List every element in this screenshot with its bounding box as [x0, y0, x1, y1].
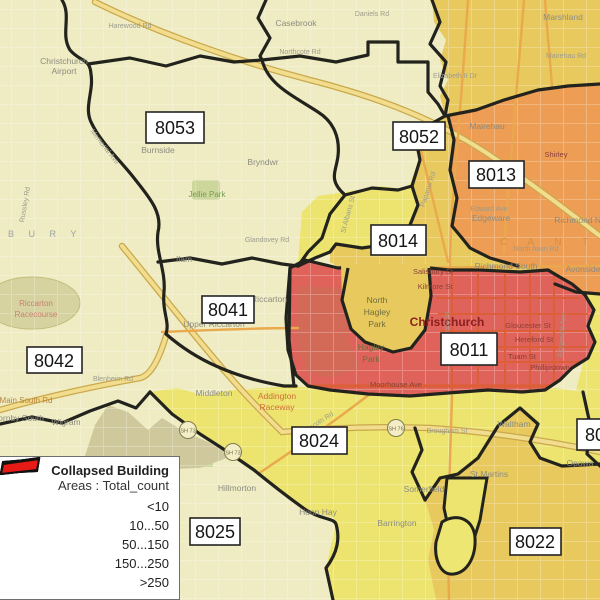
svg-text:North: North: [367, 295, 388, 305]
zone-label-8041: 8041: [202, 296, 254, 323]
svg-text:Salisbury St: Salisbury St: [413, 267, 454, 276]
svg-text:Barrington: Barrington: [377, 518, 416, 528]
svg-text:B U R Y: B U R Y: [8, 229, 82, 239]
legend-subtitle: Areas : Total_count: [6, 478, 169, 494]
svg-text:8024: 8024: [299, 431, 339, 451]
svg-text:8014: 8014: [378, 231, 418, 251]
svg-text:Richmond North: Richmond North: [554, 215, 600, 225]
map-screenshot: SH 73 SH 73 SH 76 Christchurch Christchu…: [0, 0, 600, 600]
svg-text:Bryndwr: Bryndwr: [247, 157, 278, 167]
svg-text:Edgeware: Edgeware: [472, 213, 511, 223]
svg-text:St Martins: St Martins: [470, 469, 508, 479]
svg-text:Daniels Rd: Daniels Rd: [355, 11, 389, 18]
zone-label-8022: 8022: [510, 528, 561, 555]
svg-text:Richmond South: Richmond South: [475, 261, 538, 271]
legend-panel: Collapsed Building Areas : Total_count <…: [0, 456, 180, 600]
zone-label-8011: 8011: [441, 333, 497, 365]
svg-text:Middleton: Middleton: [196, 388, 233, 398]
svg-text:Hornby South: Hornby South: [0, 413, 44, 423]
svg-text:8041: 8041: [208, 300, 248, 320]
svg-text:Wigram: Wigram: [51, 417, 80, 427]
svg-text:Moorhouse Ave: Moorhouse Ave: [370, 380, 422, 389]
svg-text:Racecourse: Racecourse: [15, 310, 58, 319]
legend-swatch-5: [0, 457, 42, 475]
svg-text:Riccarton: Riccarton: [19, 299, 53, 308]
zone-label-8024: 8024: [292, 427, 347, 454]
svg-text:SH 73: SH 73: [180, 429, 195, 435]
svg-text:Elizabeth II Dr: Elizabeth II Dr: [433, 73, 478, 80]
zone-label-8042: 8042: [27, 347, 82, 373]
legend-row: 150...250: [6, 554, 169, 573]
svg-text:Hagley: Hagley: [358, 342, 385, 352]
svg-text:Edward Ave: Edward Ave: [470, 206, 507, 213]
svg-text:Jellie Park: Jellie Park: [189, 190, 227, 199]
svg-text:Airport: Airport: [51, 66, 77, 76]
zone-label-8025: 8025: [190, 518, 240, 545]
zone-label-8052: 8052: [393, 122, 445, 150]
zone-label-8013: 8013: [469, 161, 524, 188]
svg-text:Waltham: Waltham: [497, 419, 530, 429]
svg-text:Mairehau Rd: Mairehau Rd: [546, 53, 586, 60]
legend-row: 50...150: [6, 535, 169, 554]
svg-text:SH 73: SH 73: [225, 451, 240, 457]
legend-label: <10: [6, 499, 169, 514]
svg-text:Glandovey Rd: Glandovey Rd: [245, 237, 289, 244]
svg-text:Burnside: Burnside: [141, 145, 175, 155]
svg-text:SH 76: SH 76: [388, 427, 403, 433]
legend-row: 10...50: [6, 516, 169, 535]
legend-label: 50...150: [6, 537, 169, 552]
svg-text:Gloucester St: Gloucester St: [505, 321, 551, 330]
svg-text:Somerfield: Somerfield: [404, 484, 445, 494]
legend-label: >250: [6, 575, 169, 590]
svg-text:8025: 8025: [195, 522, 235, 542]
sh73-shield: SH 73: [180, 422, 197, 439]
svg-text:Riccarton: Riccarton: [251, 294, 287, 304]
svg-text:Brougham St: Brougham St: [427, 428, 468, 435]
svg-text:C A N T E: C A N T E: [500, 237, 600, 248]
svg-text:Mairehau: Mairehau: [469, 121, 505, 131]
svg-text:Hagley: Hagley: [364, 307, 391, 317]
svg-text:Park: Park: [362, 354, 380, 364]
svg-text:Addington: Addington: [258, 391, 297, 401]
svg-text:8052: 8052: [399, 127, 439, 147]
svg-text:8053: 8053: [155, 118, 195, 138]
svg-text:Harewood Rd: Harewood Rd: [109, 23, 152, 30]
svg-text:Kilmore St: Kilmore St: [418, 282, 454, 291]
svg-text:8011: 8011: [450, 340, 489, 360]
legend-row: >250: [6, 573, 169, 592]
svg-text:Ilam: Ilam: [176, 254, 192, 264]
svg-text:80: 80: [585, 425, 600, 445]
svg-text:Avonside: Avonside: [566, 264, 600, 274]
sh73-shield: SH 73: [225, 444, 242, 461]
svg-text:Opawa: Opawa: [567, 458, 594, 468]
svg-text:8022: 8022: [515, 532, 555, 552]
svg-text:Raceway: Raceway: [260, 402, 296, 412]
sh76-shield: SH 76: [388, 420, 405, 437]
svg-text:Shirley: Shirley: [545, 150, 568, 159]
svg-text:Park: Park: [368, 319, 386, 329]
svg-text:Hoon Hay: Hoon Hay: [299, 507, 338, 517]
svg-text:8042: 8042: [34, 351, 74, 371]
svg-text:Marshland: Marshland: [543, 12, 583, 22]
zone-label-8053: 8053: [146, 112, 204, 143]
svg-text:Phillipstown: Phillipstown: [530, 363, 570, 372]
legend-row: <10: [6, 497, 169, 516]
svg-text:Casebrook: Casebrook: [275, 18, 317, 28]
legend-label: 150...250: [6, 556, 169, 571]
svg-text:Hillmorton: Hillmorton: [218, 483, 257, 493]
zone-label-partial: 80: [577, 419, 600, 450]
zone-label-8014: 8014: [371, 225, 426, 255]
svg-text:Blenheim Rd: Blenheim Rd: [93, 376, 133, 383]
svg-text:Hereford St: Hereford St: [515, 335, 554, 344]
svg-text:8013: 8013: [476, 165, 516, 185]
svg-text:Tuam St: Tuam St: [508, 352, 537, 361]
svg-text:Christchurch: Christchurch: [40, 56, 88, 66]
svg-text:Northcote Rd: Northcote Rd: [279, 49, 320, 56]
legend-label: 10...50: [6, 518, 169, 533]
svg-text:Main South Rd: Main South Rd: [0, 396, 52, 405]
